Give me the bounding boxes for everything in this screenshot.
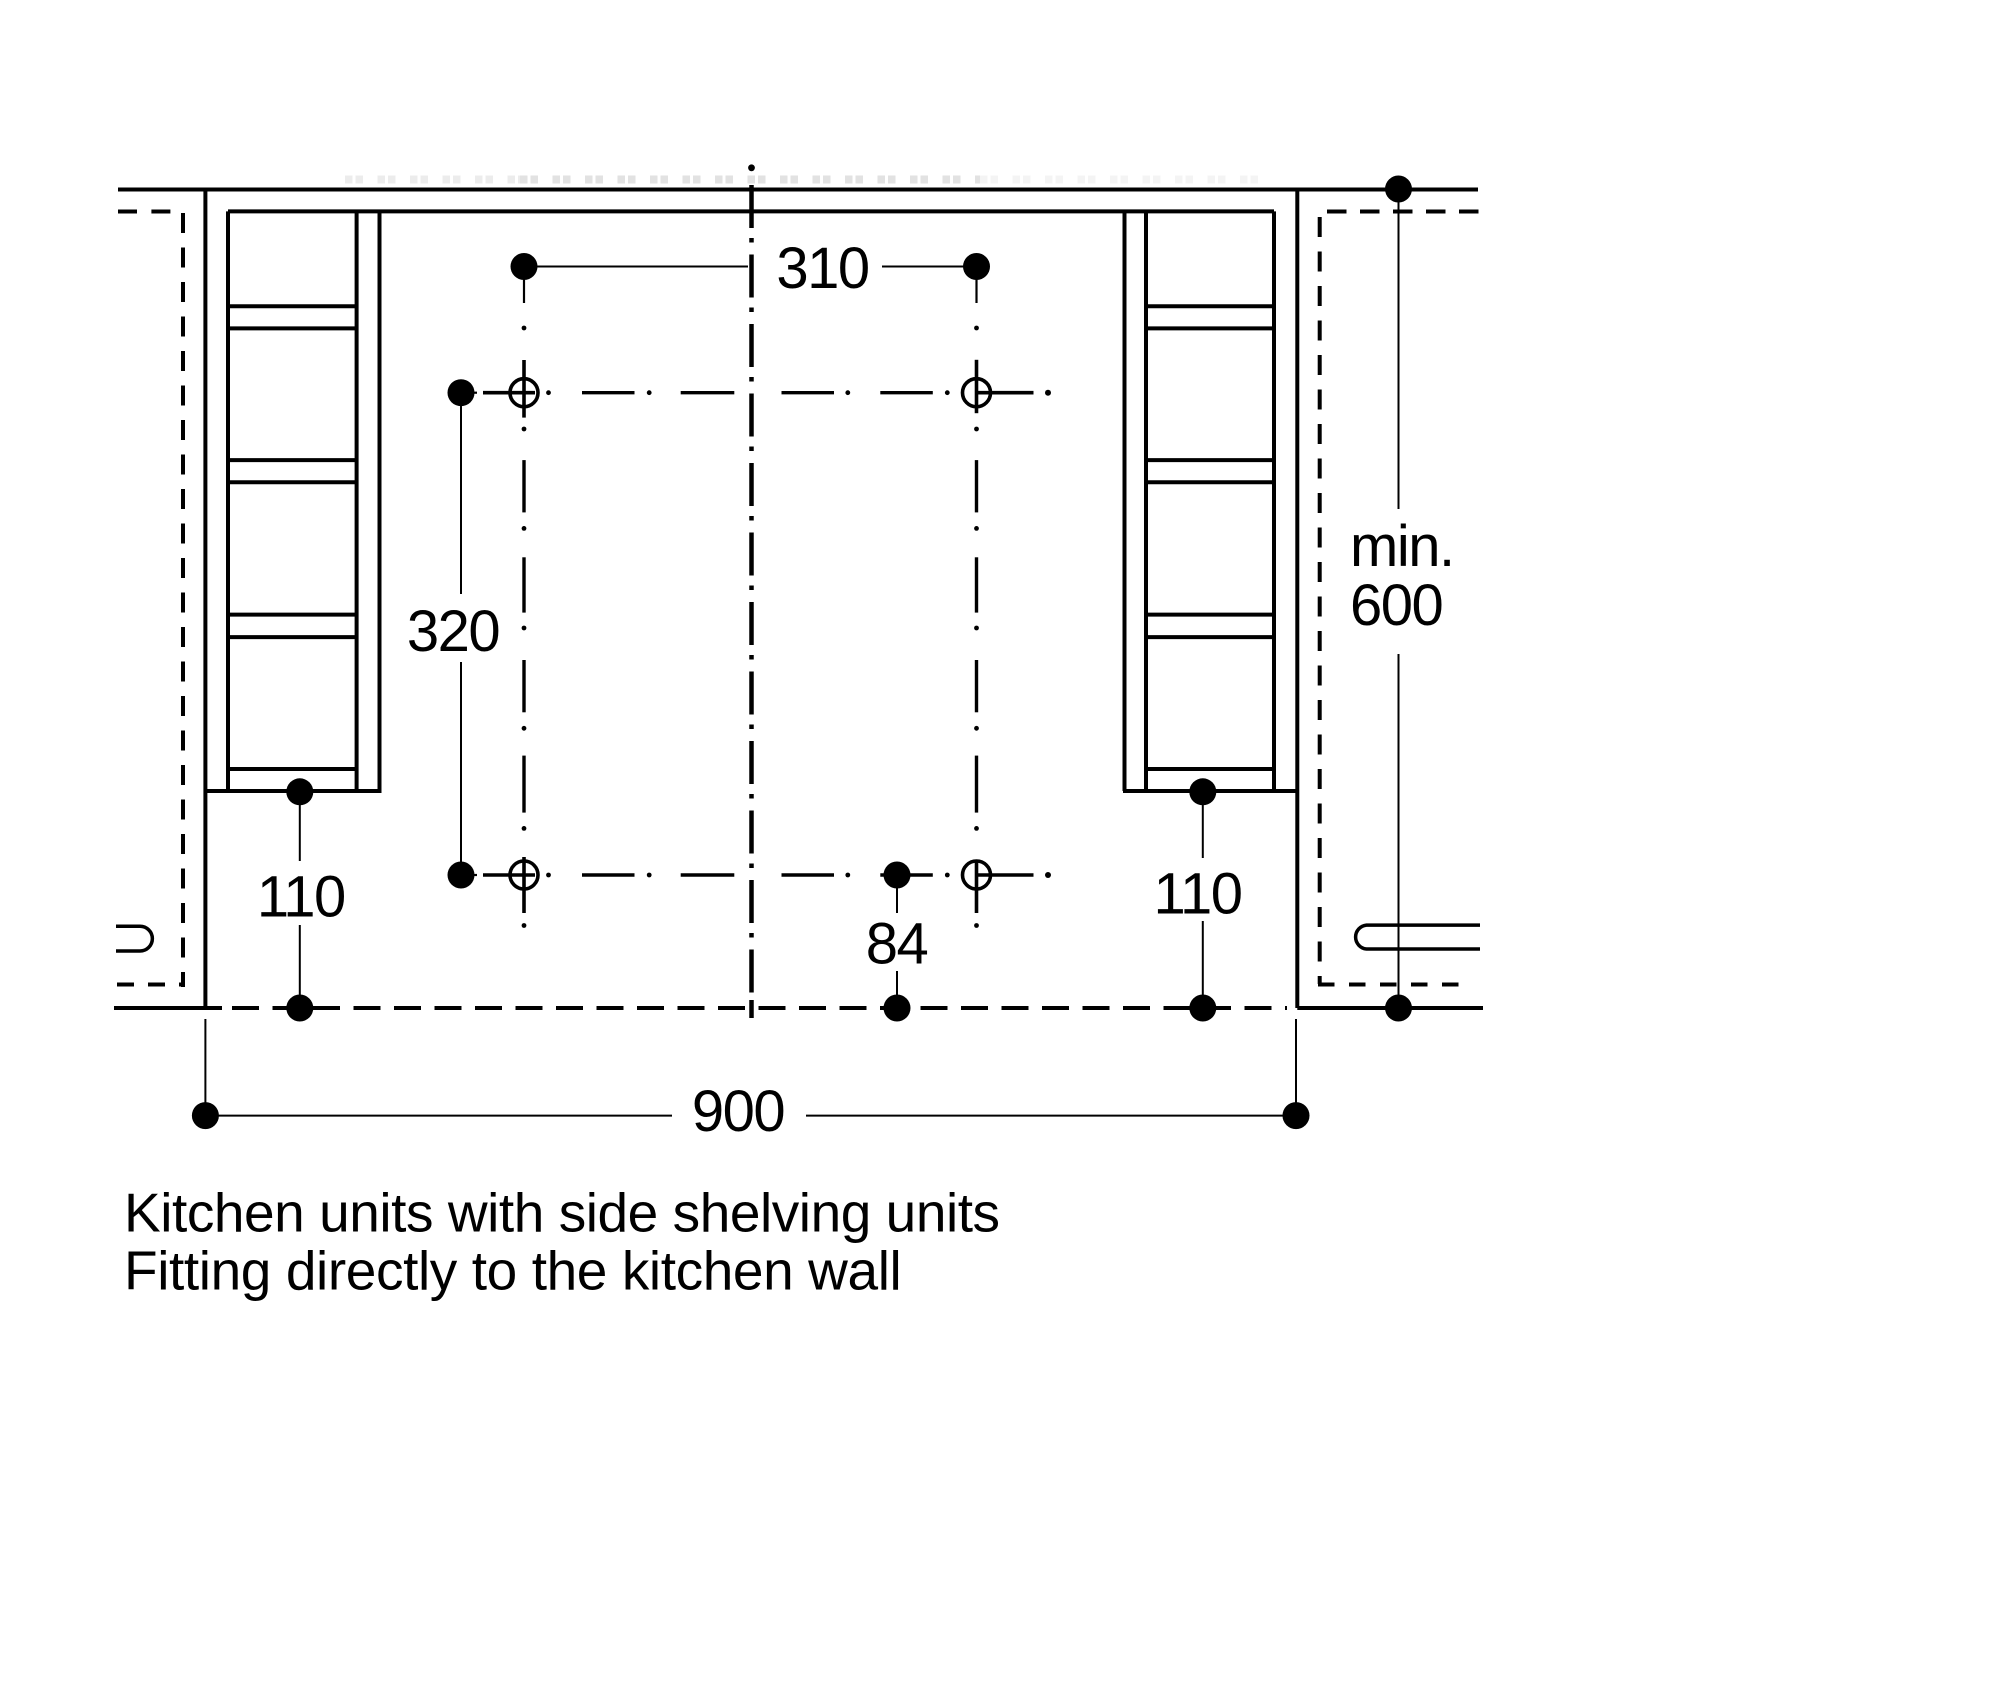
svg-text:310: 310	[776, 236, 868, 301]
svg-text:320: 320	[407, 599, 499, 664]
svg-text:110: 110	[1154, 862, 1242, 927]
svg-text:900: 900	[692, 1079, 784, 1144]
svg-text:600: 600	[1350, 573, 1442, 638]
svg-text:min.: min.	[1350, 514, 1454, 579]
svg-text:Fitting directly to the kitche: Fitting directly to the kitchen wall	[124, 1240, 901, 1302]
svg-text:84: 84	[866, 912, 928, 977]
svg-text:110: 110	[257, 865, 345, 930]
svg-text:Kitchen units with side shelvi: Kitchen units with side shelving units	[124, 1182, 1000, 1244]
